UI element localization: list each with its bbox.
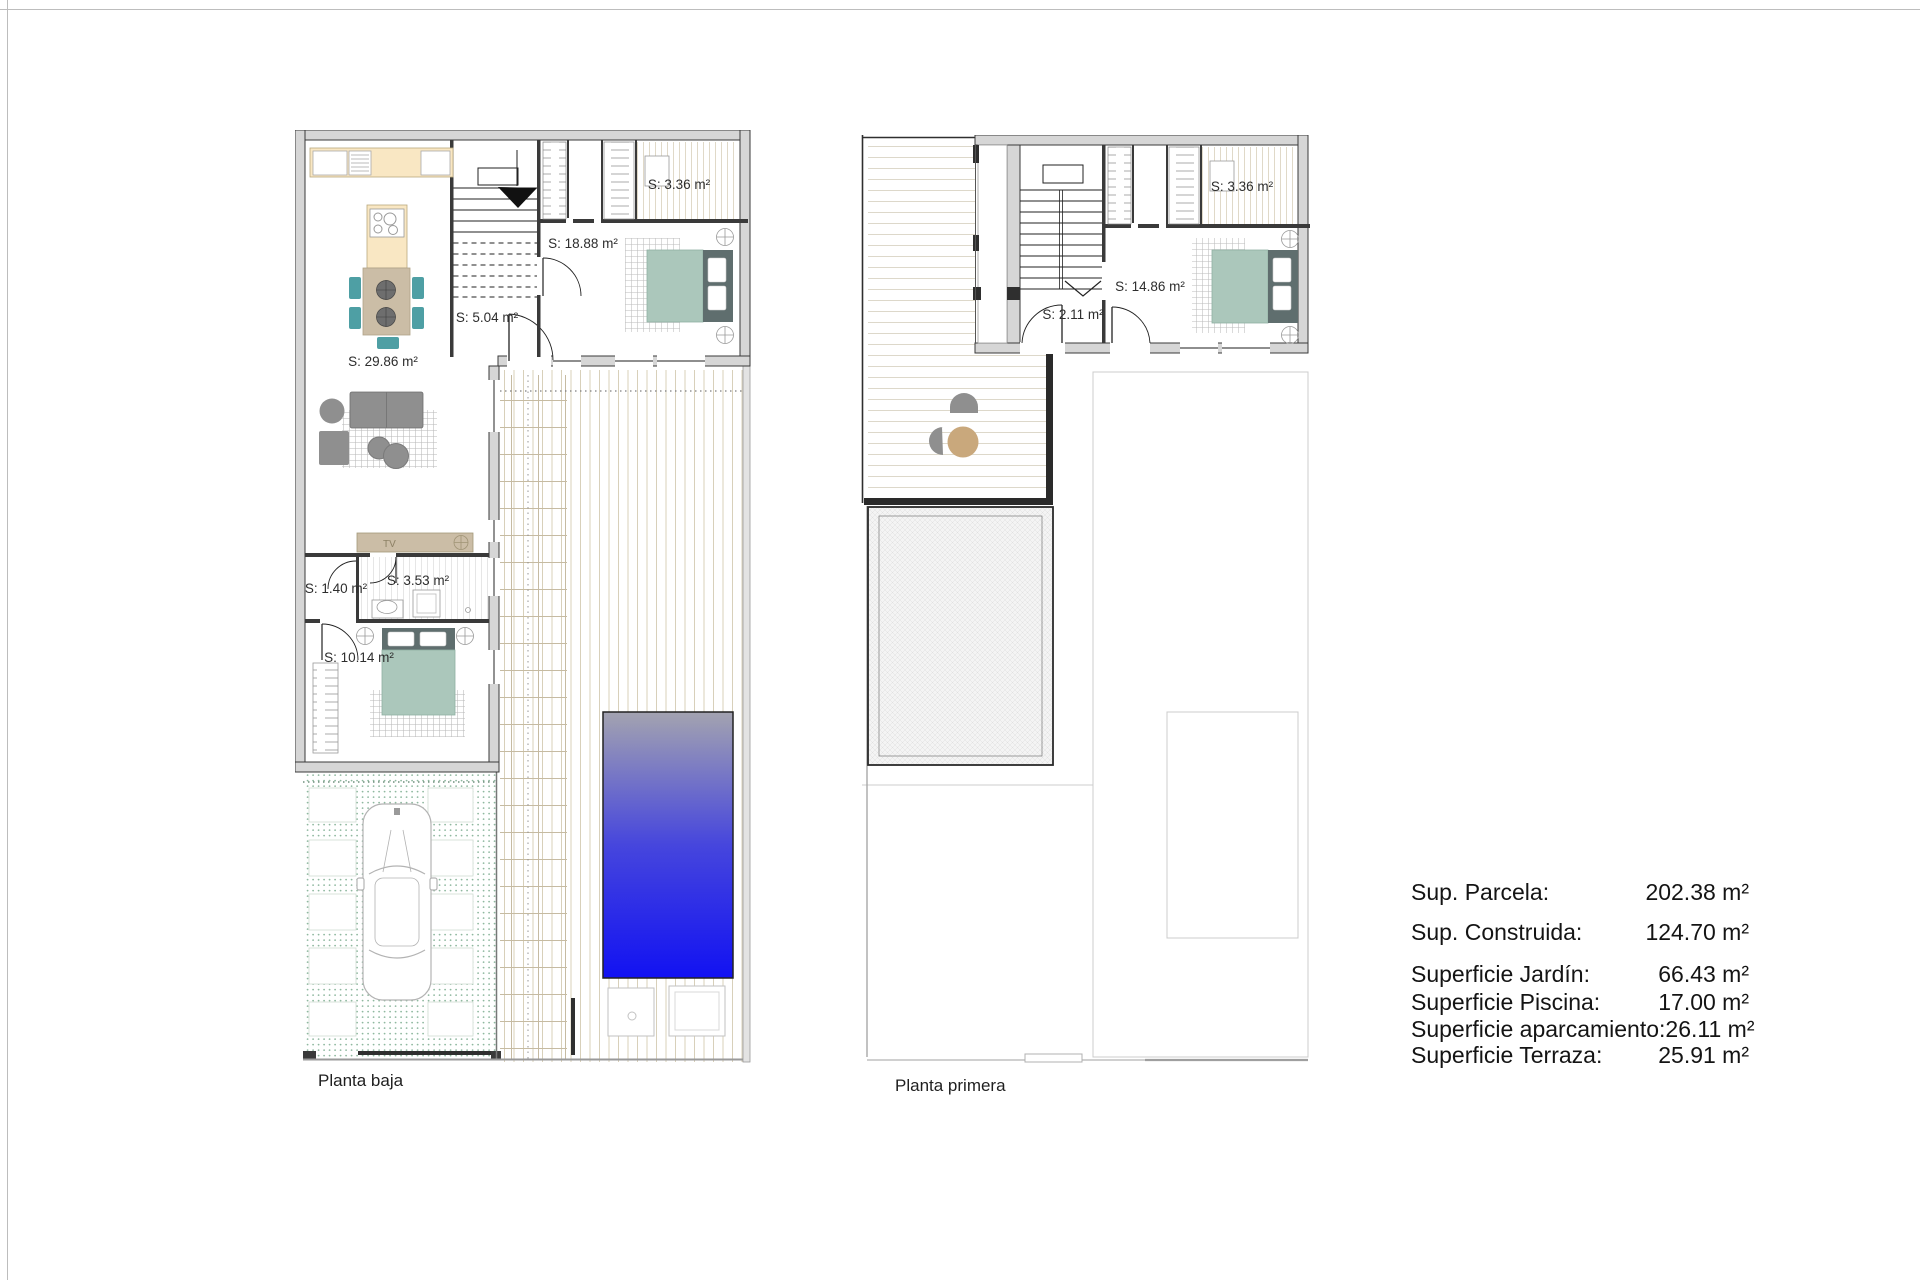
page-left-border bbox=[7, 0, 8, 1280]
kitchen-sink bbox=[313, 151, 347, 175]
wall-gap bbox=[566, 218, 573, 224]
terrace-wall-bottom bbox=[864, 498, 1053, 505]
first-floor-svg: S: 2.11 m² S: 14.86 m² S: 3.36 m² bbox=[860, 135, 1310, 1090]
first-floor-title: Planta primera bbox=[895, 1076, 1006, 1096]
room-area-label: S: 5.04 m² bbox=[456, 310, 519, 325]
legend-row-terraza: Superficie Terraza: 25.91 m² bbox=[1411, 1042, 1749, 1069]
legend-value: 202.38 m² bbox=[1645, 879, 1749, 906]
page-top-border bbox=[0, 9, 1920, 10]
armchair bbox=[319, 431, 349, 465]
master-bed bbox=[625, 238, 733, 332]
stair-direction-arrow bbox=[498, 187, 537, 208]
tv-console: TV bbox=[357, 533, 473, 552]
legend-row-construida: Sup. Construida: 124.70 m² bbox=[1411, 919, 1749, 946]
ground-floor-title: Planta baja bbox=[318, 1071, 403, 1091]
bedroom-door-right bbox=[1110, 307, 1150, 354]
ground-floor-svg: TV bbox=[295, 130, 755, 1075]
bedroom-ground bbox=[313, 624, 474, 753]
kitchen bbox=[310, 148, 453, 349]
roof-texture-square bbox=[868, 507, 1053, 765]
room-area-label: S: 2.11 m² bbox=[1042, 307, 1104, 322]
legend-value: 66.43 m² bbox=[1658, 961, 1749, 988]
wardrobe bbox=[1169, 147, 1199, 224]
legend-row-piscina: Superficie Piscina: 17.00 m² bbox=[1411, 989, 1749, 1016]
room-area-label: S: 3.36 m² bbox=[1211, 179, 1274, 194]
pouf bbox=[384, 444, 409, 469]
garden-parking-area bbox=[303, 772, 501, 1060]
legend-value: 124.70 m² bbox=[1645, 919, 1749, 946]
legend-row-jardin: Superficie Jardín: 66.43 m² bbox=[1411, 961, 1749, 988]
room-area-label: S: 1.40 m² bbox=[305, 581, 368, 596]
legend-value: 17.00 m² bbox=[1658, 989, 1749, 1016]
pergola-grid bbox=[500, 375, 567, 1059]
wardrobe bbox=[543, 142, 566, 219]
ceiling-light-icon bbox=[454, 536, 468, 550]
legend-row-parcela: Sup. Parcela: 202.38 m² bbox=[1411, 879, 1749, 906]
room-area-label: S: 18.88 m² bbox=[548, 236, 618, 251]
parcel-right-wall bbox=[743, 366, 750, 1062]
legend-label: Superficie Terraza: bbox=[1411, 1042, 1602, 1069]
first-floor-plan: S: 2.11 m² S: 14.86 m² S: 3.36 m² bbox=[860, 135, 1310, 1090]
wardrobe bbox=[313, 663, 338, 753]
legend-row-aparcamiento: Superficie aparcamiento: 26.11 m² bbox=[1411, 1016, 1749, 1043]
page: TV bbox=[0, 0, 1920, 1280]
room-area-label: S: 3.53 m² bbox=[387, 573, 450, 588]
wall-gap bbox=[594, 218, 601, 224]
wardrobe bbox=[604, 142, 634, 219]
living-room: TV bbox=[319, 392, 473, 552]
staircase bbox=[1020, 165, 1102, 296]
pool bbox=[603, 712, 733, 978]
kitchen-oven bbox=[349, 151, 371, 175]
kitchen-appliance bbox=[421, 151, 450, 175]
legend-value: 25.91 m² bbox=[1658, 1042, 1749, 1069]
terrace-wall-right bbox=[1046, 353, 1053, 498]
tv-label: TV bbox=[383, 539, 396, 550]
entrance-gate bbox=[358, 1051, 491, 1055]
wall-gap bbox=[1159, 223, 1166, 229]
hall-door-arc bbox=[543, 258, 581, 296]
legend-label: Superficie aparcamiento: bbox=[1411, 1016, 1665, 1043]
room-area-label: S: 29.86 m² bbox=[348, 354, 418, 369]
first-bedroom bbox=[1192, 231, 1299, 344]
side-table bbox=[320, 399, 345, 424]
kitchen-island bbox=[367, 205, 407, 268]
terrace-table bbox=[948, 427, 979, 458]
wall-gap bbox=[1131, 223, 1138, 229]
bed bbox=[1212, 250, 1298, 323]
deck-gate-post bbox=[571, 998, 575, 1055]
wardrobe bbox=[1108, 147, 1131, 224]
legend-label: Superficie Jardín: bbox=[1411, 961, 1590, 988]
bed bbox=[382, 628, 455, 715]
staircase bbox=[454, 150, 538, 297]
legend-label: Superficie Piscina: bbox=[1411, 989, 1600, 1016]
legend-value: 26.11 m² bbox=[1665, 1016, 1754, 1043]
dining-table bbox=[349, 268, 424, 349]
legend-label: Sup. Parcela: bbox=[1411, 879, 1549, 906]
car bbox=[357, 804, 437, 1000]
room-area-label: S: 10.14 m² bbox=[324, 650, 394, 665]
room-area-label: S: 3.36 m² bbox=[648, 177, 711, 192]
ground-floor-plan: TV bbox=[295, 130, 755, 1075]
legend-label: Sup. Construida: bbox=[1411, 919, 1582, 946]
room-area-label: S: 14.86 m² bbox=[1115, 279, 1185, 294]
